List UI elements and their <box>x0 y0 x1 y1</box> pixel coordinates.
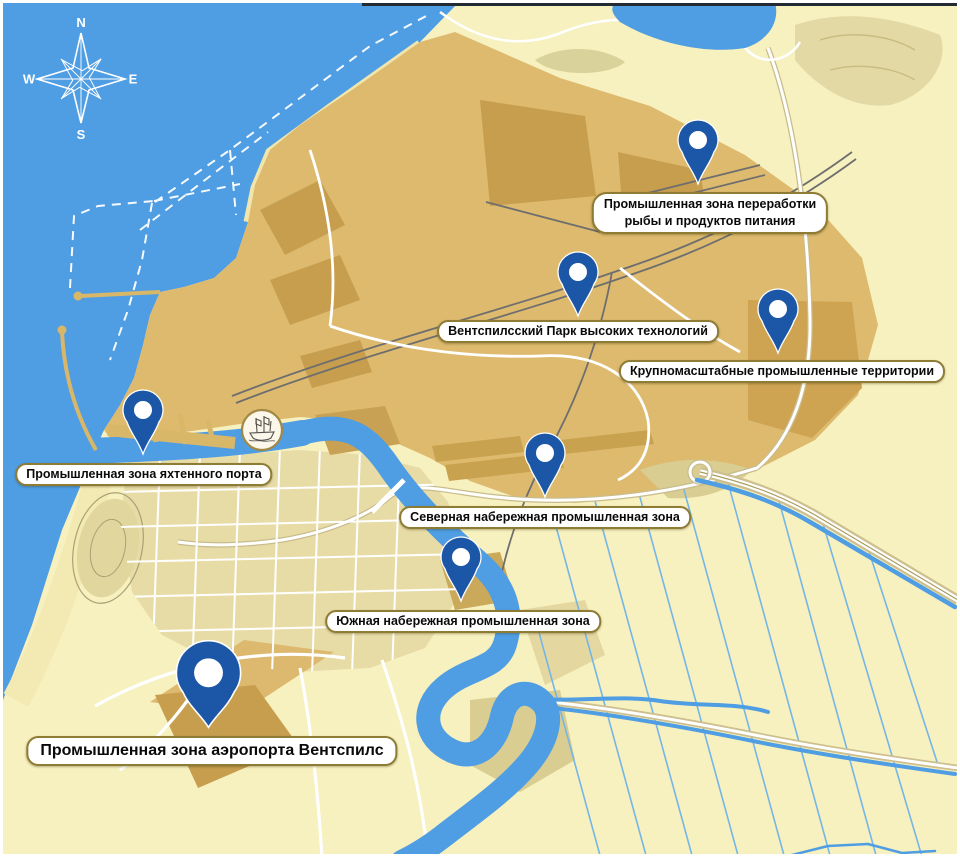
zone-label-text: Промышленная зона переработки <box>604 197 816 211</box>
zone-label-yacht-port: Промышленная зона яхтенного порта <box>15 463 272 486</box>
zone-label-airport: Промышленная зона аэропорта Вентспилс <box>26 736 397 766</box>
map-pin-yacht-port[interactable] <box>119 384 167 458</box>
zone-label-text: Вентспилсский Парк высоких технологий <box>448 324 708 338</box>
zone-label-text: Южная набережная промышленная зона <box>336 614 590 628</box>
map-pin-fish-food-processing[interactable] <box>674 114 722 188</box>
map-pin-high-tech-park[interactable] <box>554 246 602 320</box>
map-pin-north-embankment[interactable] <box>521 427 569 501</box>
compass-east-label: E <box>129 72 138 87</box>
compass-north-label: N <box>76 15 85 30</box>
zone-label-south-embankment: Южная набережная промышленная зона <box>325 610 601 633</box>
map-pin-large-scale-industrial[interactable] <box>754 283 802 357</box>
compass-west-label: W <box>23 72 36 87</box>
zone-label-text: рыбы и продуктов питания <box>625 214 796 228</box>
map-stage: N E S W Промышленная зона переработки ры… <box>0 0 960 860</box>
zone-label-north-embankment: Северная набережная промышленная зона <box>399 506 691 529</box>
zone-label-high-tech-park: Вентспилсский Парк высоких технологий <box>437 320 719 343</box>
zone-label-text: Промышленная зона аэропорта Вентспилс <box>40 742 383 759</box>
zone-label-text: Промышленная зона яхтенного порта <box>26 467 261 481</box>
zone-label-text: Северная набережная промышленная зона <box>410 510 680 524</box>
map-pin-south-embankment[interactable] <box>437 531 485 605</box>
zone-label-text: Крупномасштабные промышленные территории <box>630 364 934 378</box>
map-pin-airport[interactable] <box>170 634 247 734</box>
compass-south-label: S <box>77 127 86 142</box>
ship-emblem-icon <box>242 410 282 450</box>
zone-label-large-scale-industrial: Крупномасштабные промышленные территории <box>619 360 945 383</box>
zone-label-fish-food-processing: Промышленная зона переработки рыбы и про… <box>592 192 828 234</box>
